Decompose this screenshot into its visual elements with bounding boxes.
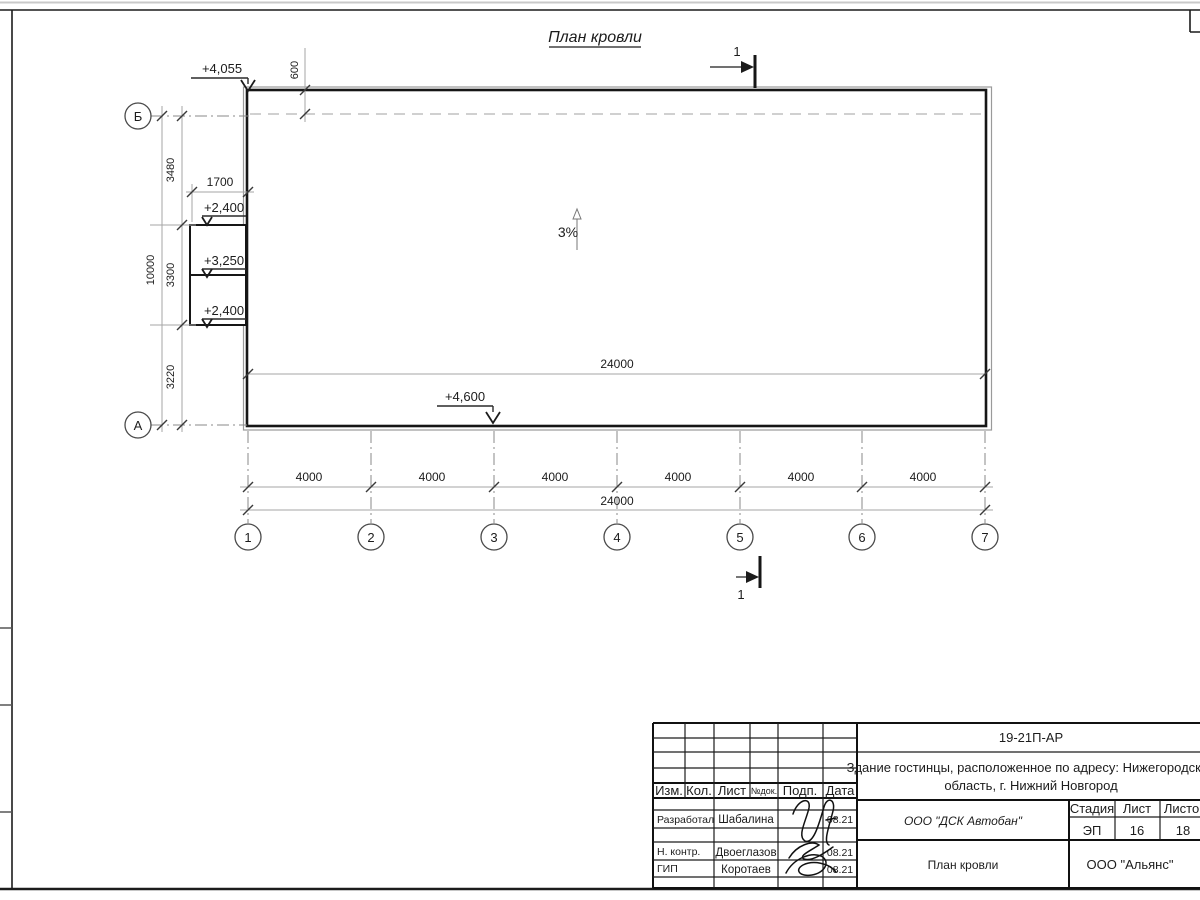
dim-3220: 3220: [165, 365, 177, 389]
stage-value: ЭП: [1083, 823, 1102, 838]
doc-code: 19-21П-АР: [999, 730, 1063, 745]
axis-label-A: А: [134, 418, 143, 433]
sheet-value: 16: [1130, 823, 1144, 838]
col-kol: Кол.: [686, 783, 712, 798]
dim-4000-3: 4000: [542, 470, 569, 484]
elev-4600-text: +4,600: [445, 389, 485, 404]
column-axis-bubbles: 1 2 3 4 5 6 7: [235, 524, 998, 550]
role-developer: Разработал: [657, 814, 714, 826]
overhang-dimension: 600: [289, 48, 310, 122]
dim-10000: 10000: [145, 255, 157, 286]
title-block-roles: Разработал Шабалина 08.21 Н. контр. Двое…: [657, 814, 853, 876]
sheets-value: 18: [1176, 823, 1190, 838]
name-developer: Шабалина: [718, 814, 774, 826]
dim-4000-2: 4000: [419, 470, 446, 484]
stage-header: Стадия: [1070, 801, 1114, 816]
contractor-name: ООО "ДСК Автобан": [904, 814, 1023, 828]
axis-label-2: 2: [367, 530, 374, 545]
col-izm: Изм.: [655, 783, 683, 798]
dim-1700: 1700: [207, 175, 234, 189]
section-label-bottom: 1: [737, 587, 744, 602]
dim-3300: 3300: [165, 263, 177, 287]
slope-mark: 3%: [558, 209, 581, 250]
sheet-title-cell: План кровли: [928, 858, 999, 872]
section-mark-top: 1: [710, 44, 755, 88]
axis-label-7: 7: [981, 530, 988, 545]
drawing-title-text: План кровли: [548, 29, 642, 46]
sheets-header: Листов: [1164, 801, 1200, 816]
drawing-title: План кровли: [548, 29, 642, 47]
client-name: ООО "Альянс": [1087, 857, 1174, 872]
title-block: Изм. Кол. Лист №док. Подп. Дата Разработ…: [653, 723, 1200, 888]
col-list: Лист: [718, 783, 746, 798]
section-mark-bottom: 1: [736, 556, 760, 602]
left-dimensions: 3480 3300 3220 10000: [145, 106, 196, 432]
section-label-top: 1: [733, 44, 740, 59]
dim-3480: 3480: [165, 158, 177, 182]
dim-4000-4: 4000: [665, 470, 692, 484]
filing-marks: [0, 628, 12, 812]
axis-label-3: 3: [490, 530, 497, 545]
dim-4000-6: 4000: [910, 470, 937, 484]
project-name-line1: Здание гостинцы, расположенное по адресу…: [847, 760, 1200, 775]
dim-24000-inner: 24000: [600, 357, 634, 371]
elevation-roof-low: +4,600: [437, 389, 500, 423]
elevation-canopy-top: +2,400: [202, 200, 246, 225]
date-gip: 08.21: [827, 864, 853, 876]
column-axes: [248, 431, 985, 523]
elev-3250-text: +3,250: [204, 253, 244, 268]
name-ncontrol: Двоеглазов: [715, 847, 776, 859]
roof-outline: [244, 87, 992, 430]
frame-corner-box: [1190, 10, 1200, 32]
axis-label-5: 5: [736, 530, 743, 545]
role-gip: ГИП: [657, 863, 678, 875]
elev-2400a-text: +2,400: [204, 200, 244, 215]
roof-edge-line: [244, 87, 992, 430]
elev-4055-text: +4,055: [202, 61, 242, 76]
dim-4000-5: 4000: [788, 470, 815, 484]
roof-plan-canvas: План кровли Б А 3480 3300 3220: [0, 0, 1200, 900]
col-data: Дата: [826, 783, 856, 798]
drawing-sheet-viewport: План кровли Б А 3480 3300 3220: [0, 0, 1200, 900]
sheet-frame: [0, 3, 1200, 890]
project-name-line2: область, г. Нижний Новгород: [944, 778, 1118, 793]
dim-4000-1: 4000: [296, 470, 323, 484]
axis-label-6: 6: [858, 530, 865, 545]
role-ncontrol: Н. контр.: [657, 846, 700, 858]
dim-24000-bottom: 24000: [600, 494, 634, 508]
slope-label: 3%: [558, 224, 578, 240]
name-gip: Коротаев: [721, 864, 771, 876]
elev-2400b-text: +2,400: [204, 303, 244, 318]
col-podp: Подп.: [783, 783, 818, 798]
inner-span-dimension: 24000: [243, 357, 990, 379]
axis-label-B: Б: [134, 109, 143, 124]
parapet-line: [247, 90, 986, 426]
elevation-roof-high: +4,055: [191, 61, 255, 91]
sheet-header: Лист: [1123, 801, 1151, 816]
dim-600: 600: [289, 61, 301, 79]
axis-label-1: 1: [244, 530, 251, 545]
axis-label-4: 4: [613, 530, 620, 545]
col-ndok: №док.: [751, 786, 777, 796]
